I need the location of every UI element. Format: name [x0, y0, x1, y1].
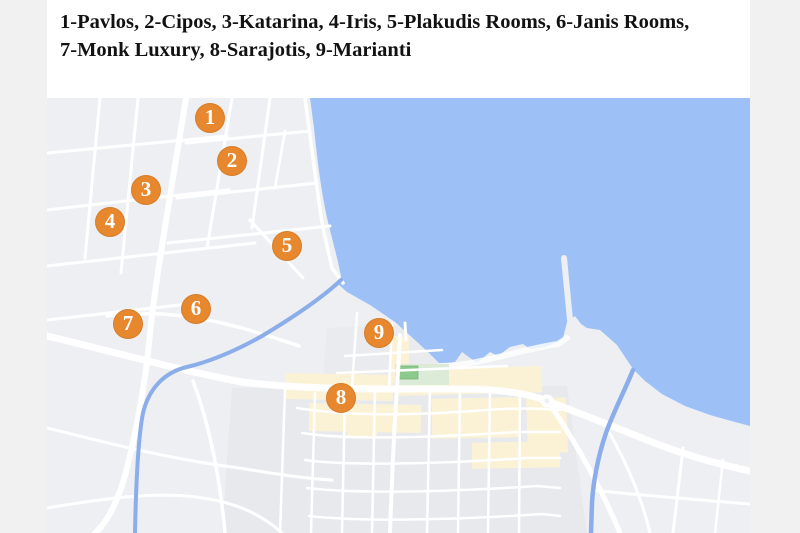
legend-line-1: 1-Pavlos, 2-Cipos, 3-Katarina, 4-Iris, 5…	[60, 9, 740, 37]
map-marker-9: 9	[364, 318, 394, 348]
map-marker-8: 8	[326, 383, 356, 413]
map-image: 123456789	[47, 98, 750, 533]
map-marker-4: 4	[95, 207, 125, 237]
map-marker-1: 1	[195, 103, 225, 133]
map-marker-5: 5	[272, 231, 302, 261]
content-card: 1-Pavlos, 2-Cipos, 3-Katarina, 4-Iris, 5…	[47, 0, 750, 533]
map-marker-3: 3	[131, 175, 161, 205]
hotel-legend: 1-Pavlos, 2-Cipos, 3-Katarina, 4-Iris, 5…	[60, 9, 740, 64]
page: { "legend": { "line1": "1-Pavlos, 2-Cipo…	[0, 0, 800, 533]
legend-line-2: 7-Monk Luxury, 8-Sarajotis, 9-Marianti	[60, 37, 740, 65]
marker-layer: 123456789	[47, 98, 750, 533]
map-marker-2: 2	[217, 146, 247, 176]
map-marker-6: 6	[181, 294, 211, 324]
map-marker-7: 7	[113, 309, 143, 339]
